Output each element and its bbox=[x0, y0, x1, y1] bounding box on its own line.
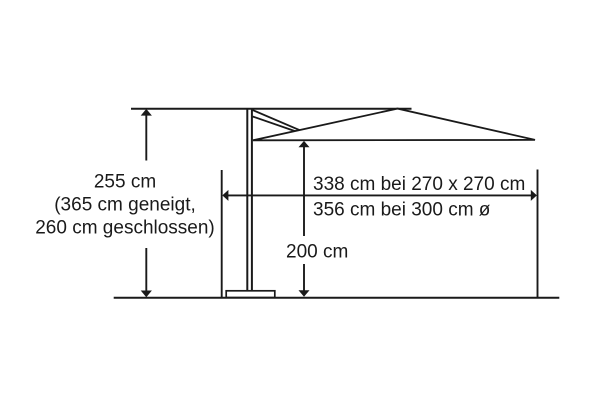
svg-text:200 cm: 200 cm bbox=[286, 242, 348, 263]
svg-text:338 cm bei 270 x 270 cm: 338 cm bei 270 x 270 cm bbox=[313, 174, 525, 195]
svg-text:260 cm geschlossen): 260 cm geschlossen) bbox=[35, 218, 215, 239]
svg-text:(365 cm geneigt,: (365 cm geneigt, bbox=[54, 195, 196, 216]
svg-text:356 cm bei 300 cm ø: 356 cm bei 300 cm ø bbox=[313, 199, 491, 220]
svg-text:255 cm: 255 cm bbox=[94, 172, 156, 193]
